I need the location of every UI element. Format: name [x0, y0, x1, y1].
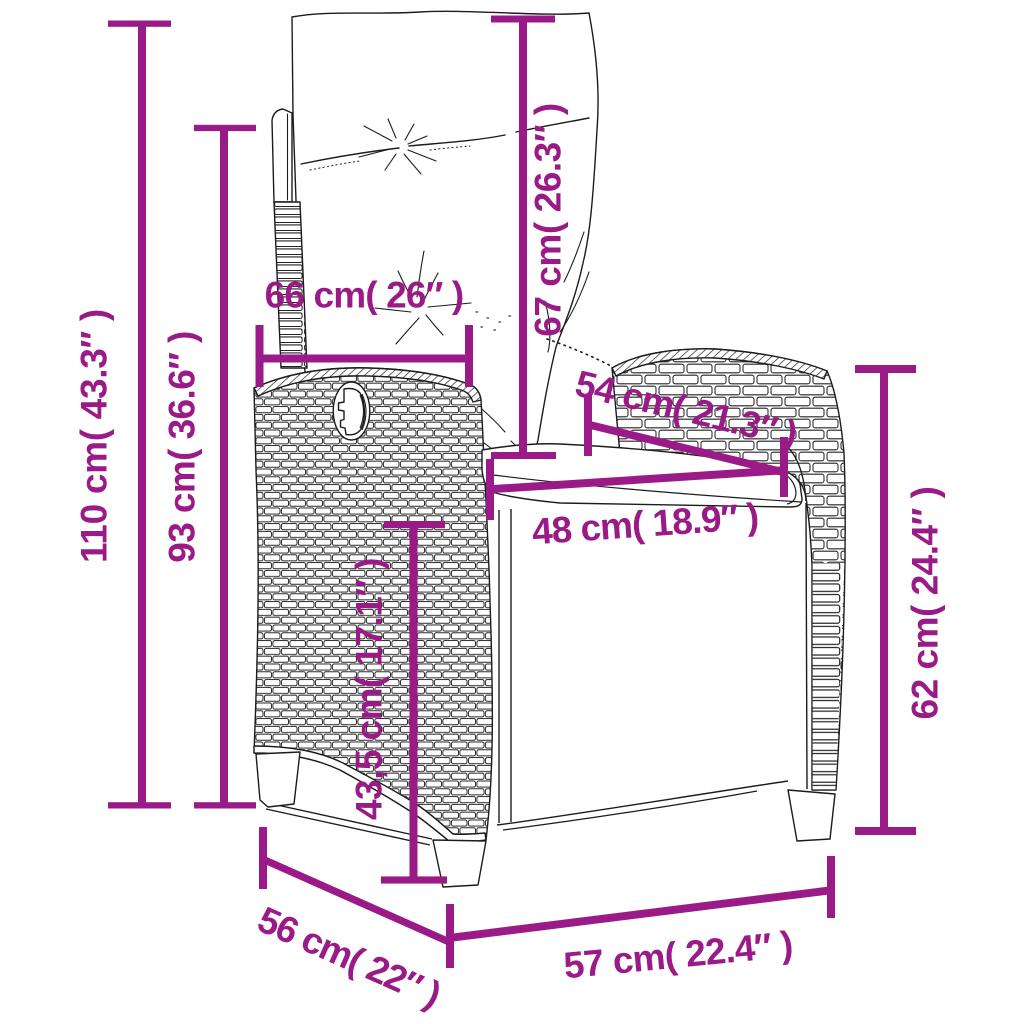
svg-text:67 cm( 26.3″ ): 67 cm( 26.3″ ) — [528, 103, 569, 337]
svg-text:62 cm( 24.4″ ): 62 cm( 24.4″ ) — [905, 487, 946, 720]
svg-text:43,5 cm( 17.1″ ): 43,5 cm( 17.1″ ) — [349, 558, 390, 820]
svg-text:110 cm( 43.3″ ): 110 cm( 43.3″ ) — [74, 309, 115, 563]
svg-text:93 cm( 36.6″ ): 93 cm( 36.6″ ) — [162, 331, 203, 562]
svg-text:66 cm( 26″ ): 66 cm( 26″ ) — [265, 275, 464, 316]
